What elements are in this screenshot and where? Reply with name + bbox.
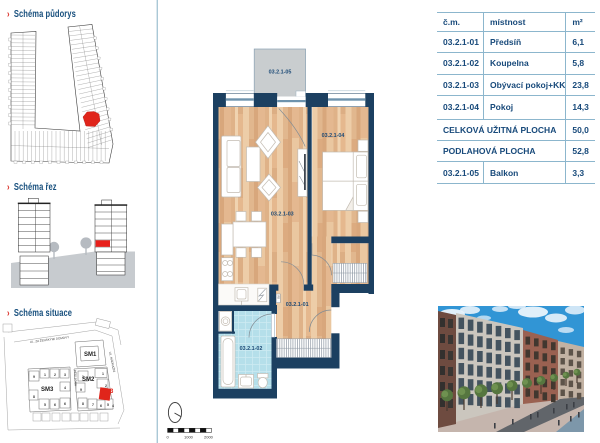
svg-text:5: 5 — [107, 403, 109, 407]
svg-text:03.2.1-04: 03.2.1-04 — [322, 133, 345, 139]
svg-text:UL. ZA ŽENSKÝMI DOMOVY: UL. ZA ŽENSKÝMI DOMOVY — [30, 334, 70, 344]
svg-text:1000: 1000 — [184, 435, 194, 440]
svg-text:4: 4 — [64, 386, 66, 390]
svg-text:03.2.1-03: 03.2.1-03 — [271, 212, 294, 218]
svg-text:03.2.1-05: 03.2.1-05 — [269, 70, 292, 76]
svg-text:0: 0 — [167, 435, 170, 440]
svg-text:2: 2 — [105, 384, 107, 388]
svg-text:03.2.1-02: 03.2.1-02 — [240, 346, 263, 352]
svg-text:5: 5 — [44, 403, 46, 407]
svg-text:03.2.1-01: 03.2.1-01 — [286, 302, 309, 308]
svg-text:8: 8 — [33, 395, 35, 399]
svg-text:7: 7 — [92, 403, 94, 407]
svg-text:SM1: SM1 — [84, 352, 97, 358]
svg-text:UL. NÁDRAŽNÍ: UL. NÁDRAŽNÍ — [108, 351, 117, 373]
svg-text:SM3: SM3 — [41, 387, 54, 393]
svg-text:RD: RD — [276, 296, 279, 300]
svg-text:PĚŠÍ ZÓNA: PĚŠÍ ZÓNA — [73, 370, 79, 386]
svg-text:6: 6 — [64, 402, 66, 406]
svg-text:9: 9 — [80, 388, 82, 392]
svg-text:2000: 2000 — [204, 435, 214, 440]
svg-text:4: 4 — [112, 404, 114, 408]
svg-text:1: 1 — [82, 375, 84, 379]
svg-text:1: 1 — [102, 372, 104, 376]
svg-text:1: 1 — [44, 373, 46, 377]
svg-text:6: 6 — [54, 403, 56, 407]
svg-text:8: 8 — [82, 402, 84, 406]
svg-text:2: 2 — [54, 373, 56, 377]
svg-text:9: 9 — [33, 375, 35, 379]
svg-text:3: 3 — [64, 373, 66, 377]
svg-text:6: 6 — [100, 404, 102, 408]
svg-text:3: 3 — [110, 389, 114, 395]
